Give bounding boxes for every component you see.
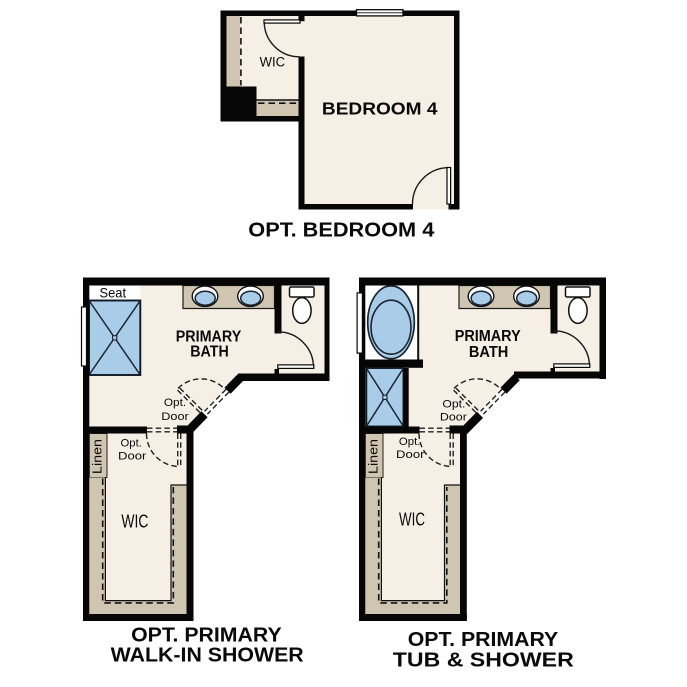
svg-text:Linen: Linen [90, 439, 105, 474]
svg-text:BEDROOM 4: BEDROOM 4 [322, 99, 438, 119]
svg-text:WIC: WIC [121, 510, 148, 531]
svg-text:Door: Door [440, 411, 467, 423]
svg-text:OPT. PRIMARY: OPT. PRIMARY [131, 625, 282, 647]
svg-text:WIC: WIC [260, 55, 286, 70]
svg-text:PRIMARY: PRIMARY [455, 328, 521, 345]
svg-text:Door: Door [396, 449, 425, 461]
svg-text:Seat: Seat [100, 286, 127, 301]
svg-text:Door: Door [161, 411, 189, 423]
svg-text:WIC: WIC [399, 509, 425, 530]
svg-text:WALK-IN SHOWER: WALK-IN SHOWER [111, 645, 305, 667]
svg-text:Opt.: Opt. [164, 397, 186, 409]
svg-text:OPT. BEDROOM 4: OPT. BEDROOM 4 [248, 219, 435, 241]
svg-text:BATH: BATH [469, 344, 509, 361]
svg-text:OPT. PRIMARY: OPT. PRIMARY [408, 629, 559, 651]
svg-text:Opt.: Opt. [399, 436, 421, 448]
svg-text:Linen: Linen [366, 439, 381, 474]
svg-text:Opt.: Opt. [121, 437, 142, 449]
svg-text:TUB & SHOWER: TUB & SHOWER [393, 649, 575, 671]
svg-text:BATH: BATH [190, 344, 229, 361]
svg-text:Opt.: Opt. [442, 399, 465, 411]
svg-text:Door: Door [118, 450, 147, 462]
